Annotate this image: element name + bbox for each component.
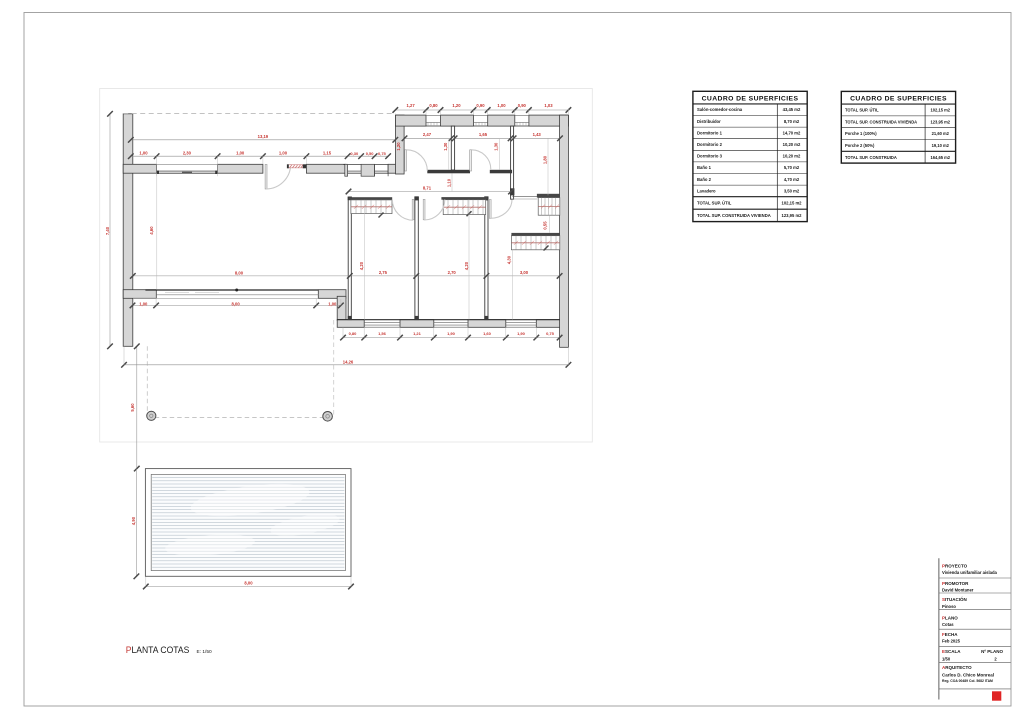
svg-text:13,19: 13,19 (258, 134, 269, 139)
svg-text:1,27: 1,27 (407, 103, 416, 108)
svg-text:8,70 m2: 8,70 m2 (784, 119, 800, 124)
svg-text:0,80: 0,80 (349, 331, 358, 336)
svg-text:TOTAL SUP. CONSTRUIDA VIVIENDA: TOTAL SUP. CONSTRUIDA VIVIENDA (845, 119, 917, 124)
svg-text:Porche 1 (100%): Porche 1 (100%) (845, 131, 877, 136)
svg-text:8,00: 8,00 (235, 271, 244, 276)
svg-text:21,60 m2: 21,60 m2 (932, 131, 950, 136)
svg-text:TOTAL SUP. ÚTIL: TOTAL SUP. ÚTIL (845, 108, 879, 113)
svg-text:Nº PLANO: Nº PLANO (981, 649, 1003, 654)
svg-text:4,30: 4,30 (506, 255, 511, 264)
svg-text:3,00: 3,00 (520, 270, 529, 275)
svg-text:0,75: 0,75 (546, 331, 555, 336)
svg-text:Baño 1: Baño 1 (697, 165, 712, 170)
svg-text:Pinoso: Pinoso (942, 604, 956, 609)
svg-text:PROMOTOR: PROMOTOR (942, 581, 969, 586)
svg-text:1,20: 1,20 (396, 142, 401, 151)
svg-text:4,20: 4,20 (359, 261, 364, 270)
svg-text:1,43: 1,43 (533, 132, 542, 137)
svg-text:1,20: 1,20 (452, 103, 461, 108)
svg-text:Lavadero: Lavadero (697, 188, 716, 193)
svg-text:2,70: 2,70 (448, 270, 457, 275)
svg-text:TOTAL SUP. ÚTIL: TOTAL SUP. ÚTIL (697, 201, 732, 206)
svg-text:Porche 2 (50%): Porche 2 (50%) (845, 143, 875, 148)
svg-text:1,00: 1,00 (328, 301, 337, 306)
svg-text:SITUACIÓN: SITUACIÓN (942, 595, 967, 602)
svg-text:0,80: 0,80 (429, 103, 438, 108)
svg-text:2,30: 2,30 (183, 151, 192, 156)
svg-text:1,30: 1,30 (494, 142, 499, 151)
svg-text:E: 1/50: E: 1/50 (197, 649, 213, 655)
svg-text:1,90: 1,90 (517, 331, 526, 336)
svg-text:Reg. COA 00489 Col. 5682 ITAM: Reg. COA 00489 Col. 5682 ITAM (942, 679, 993, 683)
svg-text:David Montaner: David Montaner (942, 588, 974, 593)
svg-text:14,70 m2: 14,70 m2 (783, 130, 801, 135)
svg-text:0,30: 0,30 (350, 151, 359, 156)
svg-text:1,21: 1,21 (413, 331, 422, 336)
svg-text:8,71: 8,71 (423, 185, 432, 190)
svg-text:1,00: 1,00 (236, 151, 245, 156)
svg-text:1,15: 1,15 (323, 151, 332, 156)
svg-text:Feb 2025: Feb 2025 (942, 639, 961, 644)
svg-text:2,75: 2,75 (379, 270, 388, 275)
svg-text:Salón-comedor-cocina: Salón-comedor-cocina (697, 107, 743, 112)
svg-text:123,95 m2: 123,95 m2 (931, 119, 951, 124)
svg-text:CUADRO DE SUPERFICIES: CUADRO DE SUPERFICIES (702, 96, 799, 103)
svg-text:Dormitorio 3: Dormitorio 3 (697, 154, 723, 159)
svg-text:CUADRO DE SUPERFICIES: CUADRO DE SUPERFICIES (850, 96, 947, 103)
svg-text:Cotas: Cotas (942, 622, 954, 627)
svg-text:1,80: 1,80 (542, 155, 547, 164)
svg-text:0,50: 0,50 (366, 151, 375, 156)
svg-text:1/50: 1/50 (942, 656, 951, 661)
svg-text:ARQUITECTO: ARQUITECTO (942, 665, 972, 670)
svg-text:1,03: 1,03 (544, 103, 553, 108)
svg-text:1,60: 1,60 (483, 331, 492, 336)
svg-text:Dormitorio 2: Dormitorio 2 (697, 142, 723, 147)
svg-text:4,70 m2: 4,70 m2 (784, 177, 800, 182)
svg-text:Baño 2: Baño 2 (697, 177, 712, 182)
svg-text:164,65 m2: 164,65 m2 (931, 155, 951, 160)
svg-text:2,47: 2,47 (423, 132, 432, 137)
svg-text:8,00: 8,00 (232, 301, 241, 306)
svg-text:Carlos D. Chico Monreal: Carlos D. Chico Monreal (942, 673, 994, 678)
svg-text:0,90: 0,90 (476, 103, 485, 108)
svg-text:102,15 m2: 102,15 m2 (931, 108, 951, 113)
svg-text:4,20: 4,20 (464, 261, 469, 270)
svg-text:FECHA: FECHA (942, 632, 958, 637)
svg-text:PLANO: PLANO (942, 615, 958, 620)
svg-text:Vivienda unifamiliar aislada: Vivienda unifamiliar aislada (942, 570, 998, 575)
svg-text:1,30: 1,30 (443, 142, 448, 151)
svg-text:10,20 m2: 10,20 m2 (783, 154, 801, 159)
svg-text:3,50 m2: 3,50 m2 (784, 188, 800, 193)
svg-text:0,55: 0,55 (543, 221, 548, 230)
svg-text:43,45 m2: 43,45 m2 (783, 107, 801, 112)
svg-text:TOTAL SUP. CONSTRUIDA: TOTAL SUP. CONSTRUIDA (845, 155, 897, 160)
svg-text:4,60: 4,60 (149, 226, 154, 235)
svg-text:123,95 m2: 123,95 m2 (781, 213, 802, 218)
svg-text:7,40: 7,40 (105, 226, 110, 235)
svg-text:1,00: 1,00 (279, 151, 288, 156)
svg-text:1,90: 1,90 (447, 331, 456, 336)
svg-text:8,00: 8,00 (244, 580, 253, 585)
svg-text:1,00: 1,00 (139, 151, 148, 156)
svg-text:5,70 m2: 5,70 m2 (784, 165, 800, 170)
svg-text:TOTAL SUP. CONSTRUIDA VIVIENDA: TOTAL SUP. CONSTRUIDA VIVIENDA (697, 213, 771, 218)
svg-text:5,60: 5,60 (130, 403, 135, 412)
svg-text:ESCALA: ESCALA (942, 649, 961, 654)
svg-text:1,00: 1,00 (497, 103, 506, 108)
svg-text:Dormitorio 1: Dormitorio 1 (697, 130, 723, 135)
svg-text:1,10: 1,10 (447, 178, 452, 187)
svg-text:Distribuidor: Distribuidor (697, 119, 721, 124)
svg-text:14,26: 14,26 (343, 359, 354, 364)
svg-text:1,56: 1,56 (378, 331, 387, 336)
svg-text:4,90: 4,90 (131, 516, 136, 525)
svg-text:PLANTA COTAS: PLANTA COTAS (126, 645, 190, 656)
svg-text:19,10 m2: 19,10 m2 (932, 143, 950, 148)
svg-text:PROYECTO: PROYECTO (942, 563, 968, 568)
svg-text:1,00: 1,00 (139, 301, 148, 306)
svg-text:1,65: 1,65 (479, 132, 488, 137)
svg-text:102,15 m2: 102,15 m2 (781, 201, 802, 206)
svg-text:0,75: 0,75 (378, 151, 387, 156)
svg-text:10,20 m2: 10,20 m2 (783, 142, 801, 147)
svg-text:0,90: 0,90 (518, 103, 527, 108)
